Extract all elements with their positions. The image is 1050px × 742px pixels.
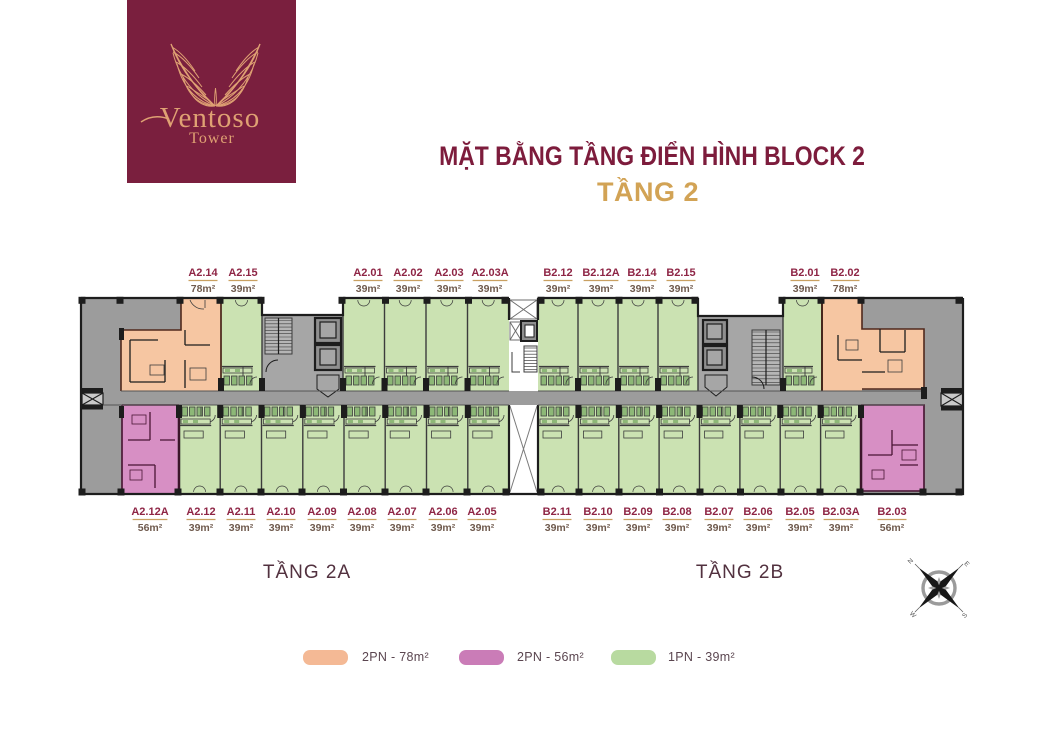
svg-text:39m²: 39m² bbox=[546, 283, 571, 295]
svg-text:39m²: 39m² bbox=[437, 283, 462, 295]
svg-text:A2.12: A2.12 bbox=[186, 506, 215, 518]
svg-text:56m²: 56m² bbox=[138, 522, 163, 534]
svg-text:B2.01: B2.01 bbox=[790, 267, 819, 279]
svg-text:39m²: 39m² bbox=[793, 283, 818, 295]
svg-text:78m²: 78m² bbox=[191, 283, 216, 295]
svg-text:A2.05: A2.05 bbox=[467, 506, 496, 518]
svg-text:A2.12A: A2.12A bbox=[131, 506, 168, 518]
svg-text:39m²: 39m² bbox=[626, 522, 651, 534]
svg-text:39m²: 39m² bbox=[586, 522, 611, 534]
svg-text:A2.09: A2.09 bbox=[307, 506, 336, 518]
svg-text:39m²: 39m² bbox=[669, 283, 694, 295]
svg-text:B2.06: B2.06 bbox=[743, 506, 772, 518]
svg-text:A2.14: A2.14 bbox=[188, 267, 218, 279]
svg-text:Tower: Tower bbox=[189, 130, 235, 147]
svg-text:39m²: 39m² bbox=[350, 522, 375, 534]
svg-text:A2.06: A2.06 bbox=[428, 506, 457, 518]
svg-text:B2.12: B2.12 bbox=[543, 267, 572, 279]
svg-text:39m²: 39m² bbox=[431, 522, 456, 534]
svg-text:A2.03: A2.03 bbox=[434, 267, 463, 279]
svg-text:B2.15: B2.15 bbox=[666, 267, 695, 279]
svg-text:E: E bbox=[962, 560, 970, 568]
svg-text:A2.11: A2.11 bbox=[227, 506, 256, 518]
svg-text:39m²: 39m² bbox=[231, 283, 256, 295]
svg-text:39m²: 39m² bbox=[589, 283, 614, 295]
svg-text:39m²: 39m² bbox=[630, 283, 655, 295]
svg-text:B2.10: B2.10 bbox=[583, 506, 612, 518]
svg-text:56m²: 56m² bbox=[880, 522, 905, 534]
svg-text:39m²: 39m² bbox=[478, 283, 503, 295]
svg-text:A2.10: A2.10 bbox=[266, 506, 295, 518]
svg-text:A2.08: A2.08 bbox=[347, 506, 376, 518]
svg-text:39m²: 39m² bbox=[310, 522, 335, 534]
svg-text:39m²: 39m² bbox=[470, 522, 495, 534]
svg-text:39m²: 39m² bbox=[707, 522, 732, 534]
svg-text:B2.02: B2.02 bbox=[830, 267, 859, 279]
svg-text:A2.15: A2.15 bbox=[228, 267, 257, 279]
svg-text:39m²: 39m² bbox=[229, 522, 254, 534]
svg-text:B2.03: B2.03 bbox=[877, 506, 906, 518]
svg-text:39m²: 39m² bbox=[665, 522, 690, 534]
svg-text:78m²: 78m² bbox=[833, 283, 858, 295]
svg-text:S: S bbox=[961, 611, 969, 619]
svg-text:B2.12A: B2.12A bbox=[582, 267, 619, 279]
svg-text:B2.11: B2.11 bbox=[543, 506, 572, 518]
svg-text:B2.07: B2.07 bbox=[704, 506, 733, 518]
svg-text:39m²: 39m² bbox=[829, 522, 854, 534]
svg-text:B2.14: B2.14 bbox=[627, 267, 657, 279]
svg-text:A2.01: A2.01 bbox=[353, 267, 382, 279]
svg-text:B2.09: B2.09 bbox=[623, 506, 652, 518]
svg-text:39m²: 39m² bbox=[788, 522, 813, 534]
svg-text:N: N bbox=[907, 557, 915, 565]
svg-text:B2.08: B2.08 bbox=[662, 506, 691, 518]
svg-text:A2.07: A2.07 bbox=[387, 506, 416, 518]
svg-text:B2.03A: B2.03A bbox=[822, 506, 859, 518]
svg-text:39m²: 39m² bbox=[746, 522, 771, 534]
svg-text:B2.05: B2.05 bbox=[785, 506, 814, 518]
svg-text:A2.02: A2.02 bbox=[393, 267, 422, 279]
svg-text:A2.03A: A2.03A bbox=[471, 267, 508, 279]
svg-text:39m²: 39m² bbox=[269, 522, 294, 534]
svg-text:W: W bbox=[908, 610, 918, 620]
svg-text:39m²: 39m² bbox=[545, 522, 570, 534]
svg-text:39m²: 39m² bbox=[356, 283, 381, 295]
svg-text:39m²: 39m² bbox=[189, 522, 214, 534]
svg-text:39m²: 39m² bbox=[396, 283, 421, 295]
svg-text:39m²: 39m² bbox=[390, 522, 415, 534]
